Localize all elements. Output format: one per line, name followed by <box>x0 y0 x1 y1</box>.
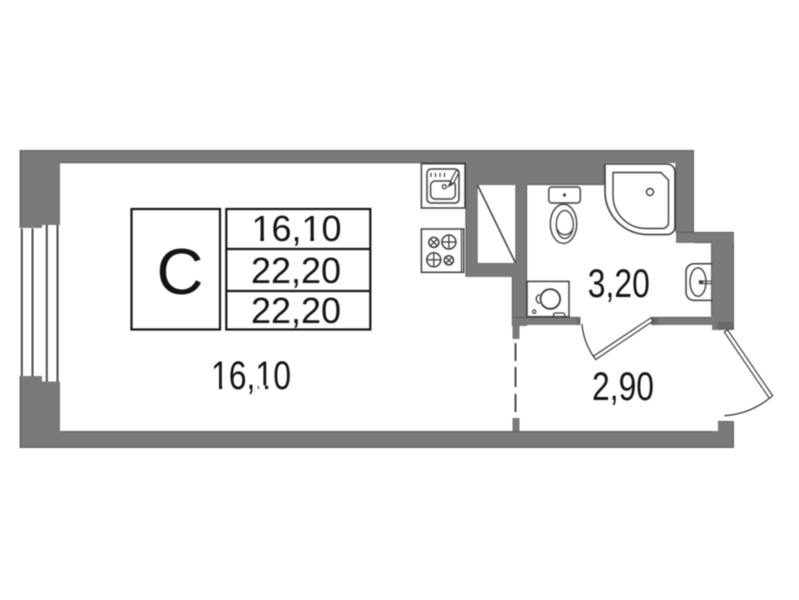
svg-text:16,10: 16,10 <box>211 354 291 398</box>
svg-text:22,20: 22,20 <box>251 290 341 331</box>
svg-text:С: С <box>157 235 204 308</box>
svg-text:22,20: 22,20 <box>251 250 341 291</box>
svg-text:16,10: 16,10 <box>251 208 341 249</box>
svg-text:2,90: 2,90 <box>592 365 654 409</box>
svg-text:3,20: 3,20 <box>588 262 650 306</box>
